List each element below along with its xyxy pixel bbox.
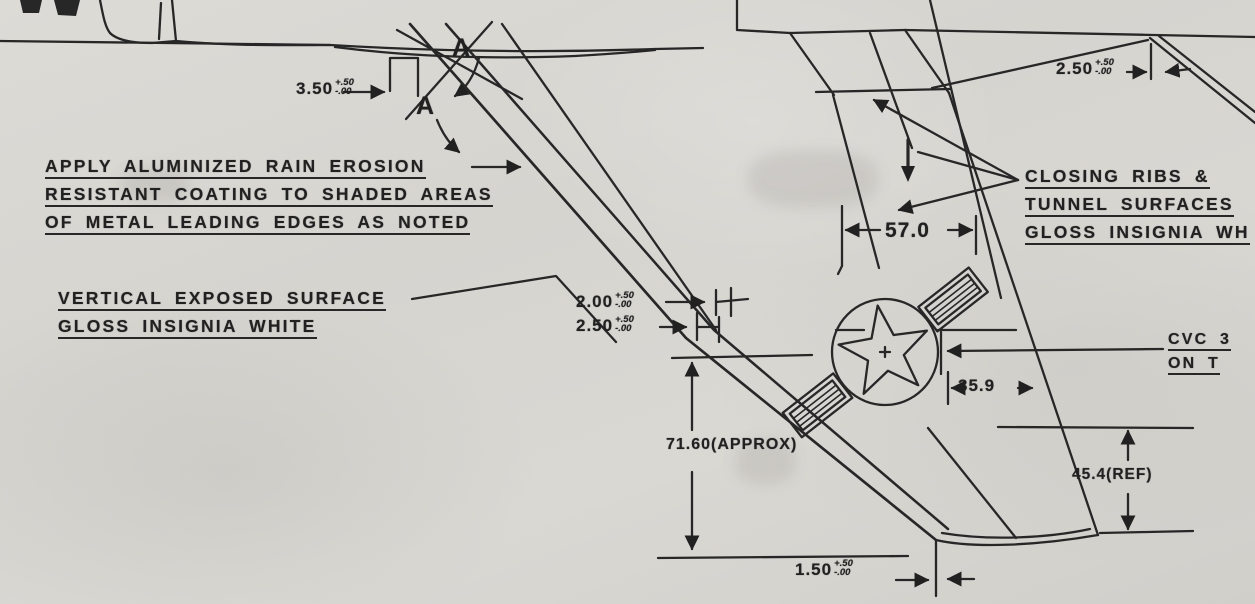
dim-71-60-value: 71.60(APPROX) — [666, 437, 797, 453]
dim-35-9-value: 35.9 — [958, 377, 995, 394]
cutoff-structure — [20, 0, 80, 16]
note-closing-ribs-line3: GLOSS INSIGNIA WH — [1025, 224, 1250, 245]
drawing-scene: APPLY ALUMINIZED RAIN EROSION RESISTANT … — [0, 0, 1255, 604]
dim-1-50-value: 1.50 — [795, 561, 832, 578]
dim-3-50-minus: -.00 — [335, 87, 354, 96]
dim-2-00: 2.00 +.50-.00 — [576, 293, 634, 310]
cvc-leader — [948, 349, 1163, 351]
note-closing-ribs-line1: CLOSING RIBS & — [1025, 168, 1210, 189]
blueprint-page: APPLY ALUMINIZED RAIN EROSION RESISTANT … — [0, 0, 1255, 604]
dim-35-9: 35.9 — [958, 377, 995, 394]
dim-2-50-top: 2.50 +.50-.00 — [1056, 60, 1114, 77]
dim-2-50-mid-minus: -.00 — [615, 324, 634, 333]
section-mark-a2: A — [416, 92, 434, 121]
dim-45-4: 45.4(REF) — [1072, 467, 1153, 483]
tunnel-line — [930, 0, 1001, 298]
dim-2-50-mid-value: 2.50 — [576, 317, 613, 334]
note-cvc-line1: CVC 3 — [1168, 332, 1231, 351]
note-cvc-line2: ON T — [1168, 356, 1220, 375]
note-closing-ribs-line2: TUNNEL SURFACES — [1025, 196, 1234, 217]
dim-45-4-value: 45.4(REF) — [1072, 467, 1153, 483]
note-rain-erosion-line2: RESISTANT COATING TO SHADED AREAS — [45, 186, 493, 207]
fairing-upper-line — [330, 45, 655, 51]
dim-2-50-top-value: 2.50 — [1056, 60, 1093, 77]
dim-2-50-mid: 2.50 +.50-.00 — [576, 317, 634, 334]
dim-57-0: 57.0 — [885, 220, 930, 241]
dim-2-00-value: 2.00 — [576, 293, 613, 310]
dim-2-50-top-minus: -.00 — [1095, 67, 1114, 76]
note-vertical-surface-line2: GLOSS INSIGNIA WHITE — [58, 318, 317, 339]
small-fin-profile — [100, 0, 176, 43]
fin-root-fairing — [790, 30, 905, 33]
dim-71-60: 71.60(APPROX) — [666, 437, 797, 453]
dim-3-50: 3.50 +.50-.00 — [296, 80, 354, 97]
dim-1-50: 1.50 +.50-.00 — [795, 561, 853, 578]
section-bracket — [390, 58, 418, 91]
note-rain-erosion-line1: APPLY ALUMINIZED RAIN EROSION — [45, 158, 426, 179]
dim-1-50-minus: -.00 — [834, 568, 853, 577]
section-mark-a1: A — [452, 34, 470, 63]
dim-3-50-value: 3.50 — [296, 80, 333, 97]
note-vertical-surface-line1: VERTICAL EXPOSED SURFACE — [58, 290, 386, 311]
section-arrow-a2 — [437, 120, 459, 152]
fin-left-edge — [833, 95, 879, 268]
dim-57-0-value: 57.0 — [885, 220, 930, 241]
note-rain-erosion-line3: OF METAL LEADING EDGES AS NOTED — [45, 214, 470, 235]
dim-2-00-minus: -.00 — [615, 300, 634, 309]
tunnel-pointer-arrow — [901, 166, 915, 182]
right-panel-edge — [1150, 38, 1255, 123]
